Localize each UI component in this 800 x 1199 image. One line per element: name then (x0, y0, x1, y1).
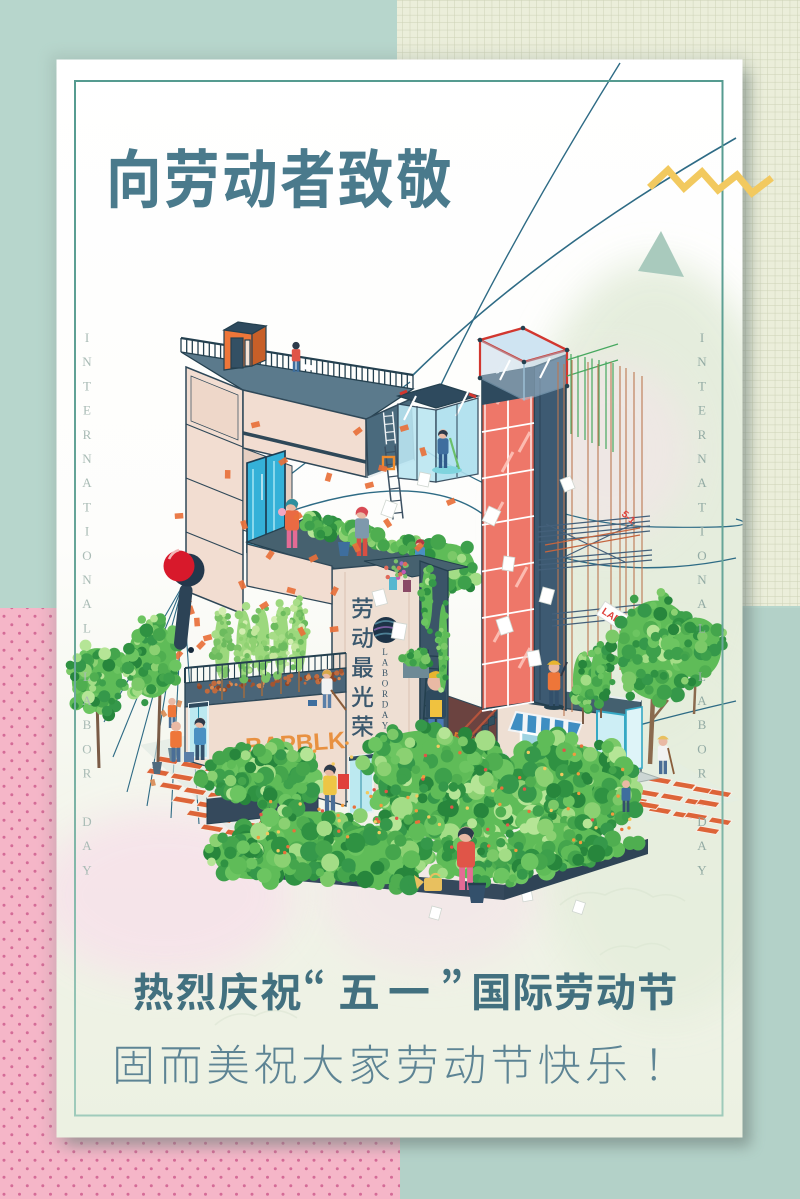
svg-text:E: E (698, 403, 706, 418)
svg-text:A: A (82, 838, 92, 853)
svg-text:D: D (382, 700, 389, 710)
svg-text:Y: Y (697, 862, 707, 877)
svg-text:N: N (82, 572, 92, 587)
svg-text:R: R (83, 427, 92, 442)
svg-text:A: A (382, 658, 389, 668)
svg-text:L: L (83, 669, 91, 684)
svg-text:O: O (697, 548, 706, 563)
svg-text:N: N (697, 572, 707, 587)
svg-text:T: T (83, 499, 91, 514)
svg-text:N: N (82, 354, 92, 369)
svg-text:L: L (382, 647, 388, 657)
svg-text:L: L (698, 669, 706, 684)
svg-text:R: R (83, 766, 92, 781)
svg-text:O: O (382, 679, 389, 689)
svg-text:D: D (82, 814, 91, 829)
svg-text:B: B (698, 717, 707, 732)
svg-text:Y: Y (82, 862, 92, 877)
svg-text:R: R (698, 427, 707, 442)
svg-text:I: I (85, 330, 89, 345)
svg-text:R: R (698, 766, 707, 781)
svg-text:B: B (83, 717, 92, 732)
svg-text:T: T (698, 499, 706, 514)
svg-text:A: A (82, 693, 92, 708)
svg-text:I: I (700, 524, 704, 539)
svg-text:A: A (697, 475, 707, 490)
svg-text:A: A (697, 693, 707, 708)
svg-text:N: N (697, 354, 707, 369)
svg-text:A: A (382, 710, 389, 720)
svg-text:N: N (697, 451, 707, 466)
svg-text:T: T (698, 378, 706, 393)
svg-text:R: R (382, 689, 388, 699)
svg-text:A: A (697, 838, 707, 853)
svg-text:T: T (83, 378, 91, 393)
svg-text:E: E (83, 403, 91, 418)
svg-text:D: D (697, 814, 706, 829)
svg-text:N: N (82, 451, 92, 466)
svg-text:I: I (700, 330, 704, 345)
svg-text:O: O (697, 741, 706, 756)
svg-text:L: L (698, 620, 706, 635)
svg-text:A: A (82, 475, 92, 490)
svg-text:B: B (382, 668, 388, 678)
svg-text:A: A (697, 596, 707, 611)
svg-text:O: O (82, 741, 91, 756)
svg-text:O: O (82, 548, 91, 563)
svg-text:L: L (83, 620, 91, 635)
svg-text:A: A (82, 596, 92, 611)
svg-text:I: I (85, 524, 89, 539)
